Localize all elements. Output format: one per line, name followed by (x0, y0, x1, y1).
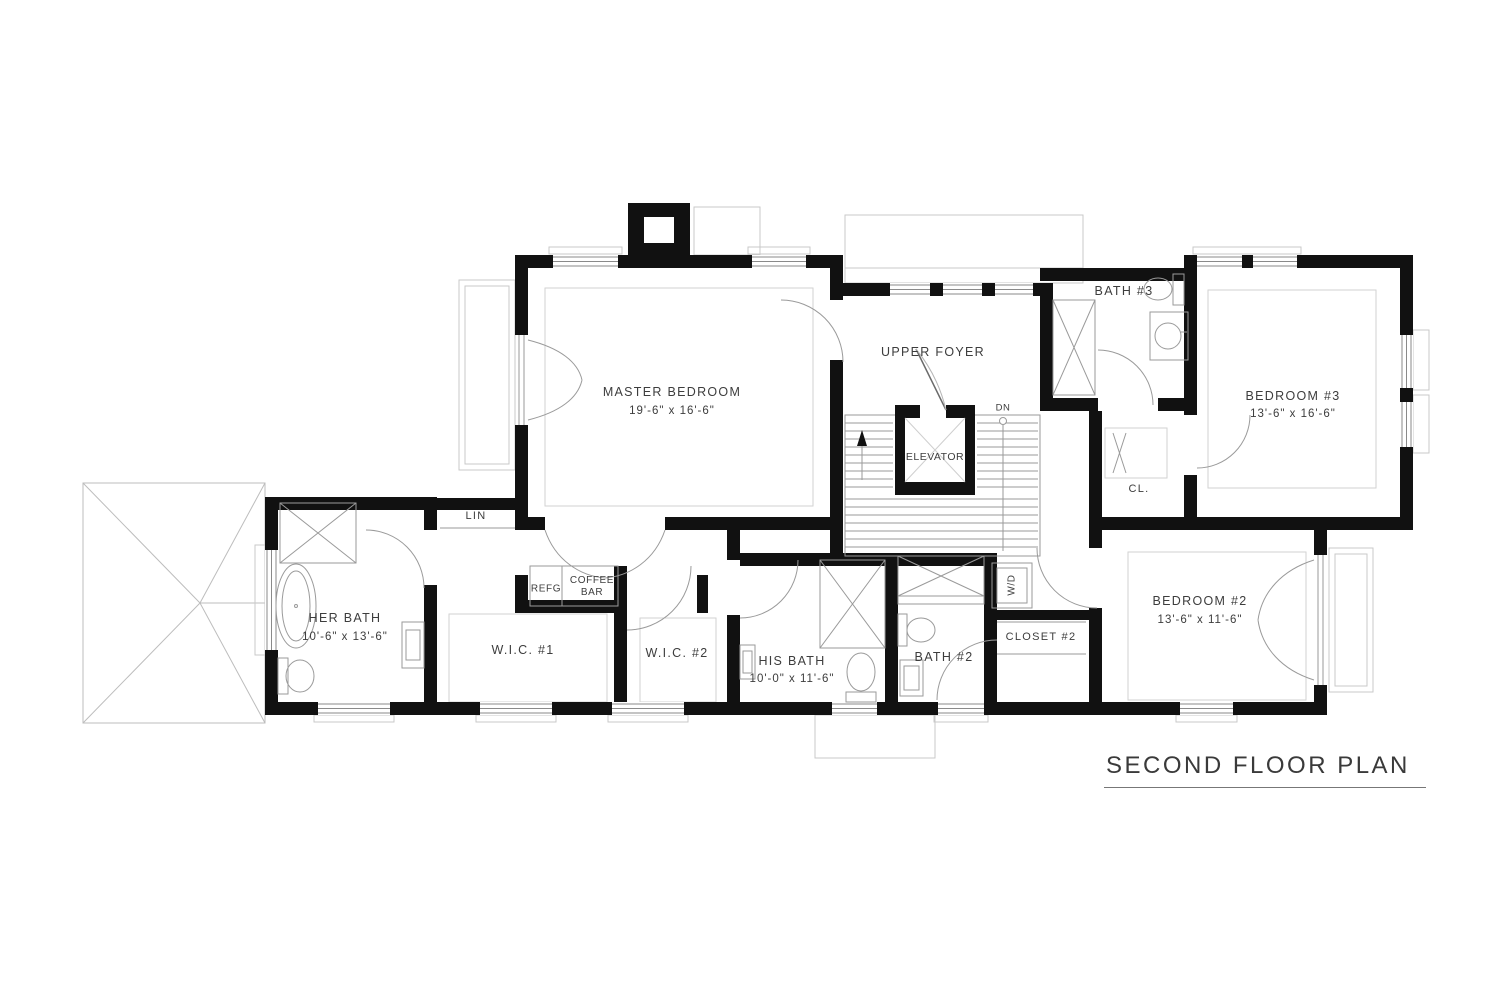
label-coffee-bar: COFFEE BAR (563, 575, 621, 599)
label-master-bedroom-dims: 19'-6" x 16'-6" (629, 405, 715, 417)
label-bedroom-3-dims: 13'-6" x 16'-6" (1250, 408, 1336, 420)
label-bedroom-2: BEDROOM #2 (1153, 594, 1248, 608)
label-washer-dryer: W/D (1007, 574, 1018, 595)
plan-title: SECOND FLOOR PLAN (1104, 752, 1426, 788)
label-wic-1: W.I.C. #1 (491, 643, 554, 657)
bath3-sink (1150, 312, 1188, 360)
label-upper-foyer: UPPER FOYER (881, 345, 985, 359)
label-elevator: ELEVATOR (906, 451, 964, 463)
label-cl-closet: CL. (1128, 483, 1149, 495)
label-refg: REFG (531, 584, 561, 595)
label-bedroom-2-dims: 13'-6" x 11'-6" (1158, 614, 1243, 626)
elevator-shaft (895, 349, 975, 495)
her-sink (402, 622, 424, 668)
label-wic-2: W.I.C. #2 (645, 646, 708, 660)
floor-plan-drawing (0, 0, 1500, 999)
her-shower (280, 503, 356, 563)
label-master-bedroom: MASTER BEDROOM (603, 385, 741, 399)
label-bath-2: BATH #2 (915, 650, 974, 664)
label-her-bath-dims: 10'-6" x 13'-6" (302, 631, 388, 643)
label-stairs-down: DN (996, 403, 1011, 414)
floor-plan-canvas: MASTER BEDROOM 19'-6" x 16'-6" UPPER FOY… (0, 0, 1500, 999)
his-toilet (846, 653, 876, 702)
her-toilet (278, 658, 314, 694)
his-shower (820, 560, 885, 648)
bath2-toilet (898, 614, 935, 646)
stair-up-arrow (857, 430, 867, 446)
label-bedroom-3: BEDROOM #3 (1246, 389, 1341, 403)
cl-hanger-marks (1113, 433, 1126, 473)
bath3-shower (1053, 300, 1095, 395)
label-bath-3: BATH #3 (1095, 284, 1154, 298)
garage-roof (83, 483, 265, 723)
label-his-bath-dims: 10'-0" x 11'-6" (750, 673, 835, 685)
label-linen: LIN (465, 510, 486, 522)
label-her-bath: HER BATH (309, 611, 382, 625)
label-his-bath: HIS BATH (758, 654, 825, 668)
bath2-sink (900, 660, 923, 696)
label-closet-2: CLOSET #2 (1006, 631, 1077, 643)
